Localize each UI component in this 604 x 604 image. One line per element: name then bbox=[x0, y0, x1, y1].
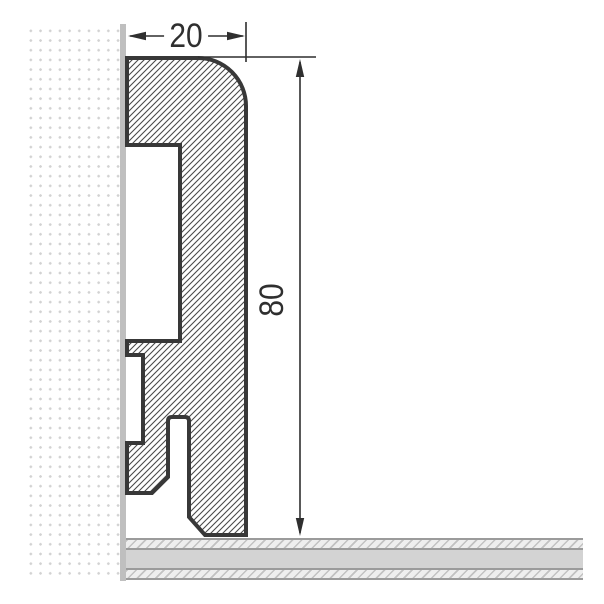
height-dimension-label: 80 bbox=[255, 283, 289, 316]
height-dim-arrow-bottom bbox=[296, 518, 304, 536]
height-dim-arrow-top bbox=[296, 59, 304, 77]
technical-drawing-canvas: 20 80 bbox=[0, 0, 604, 604]
skirting-profile bbox=[127, 58, 246, 535]
width-dim-arrow-right bbox=[227, 32, 245, 40]
width-dim-arrow-left bbox=[128, 32, 146, 40]
width-dimension-label: 20 bbox=[164, 19, 208, 53]
profile-drawing bbox=[0, 0, 604, 604]
